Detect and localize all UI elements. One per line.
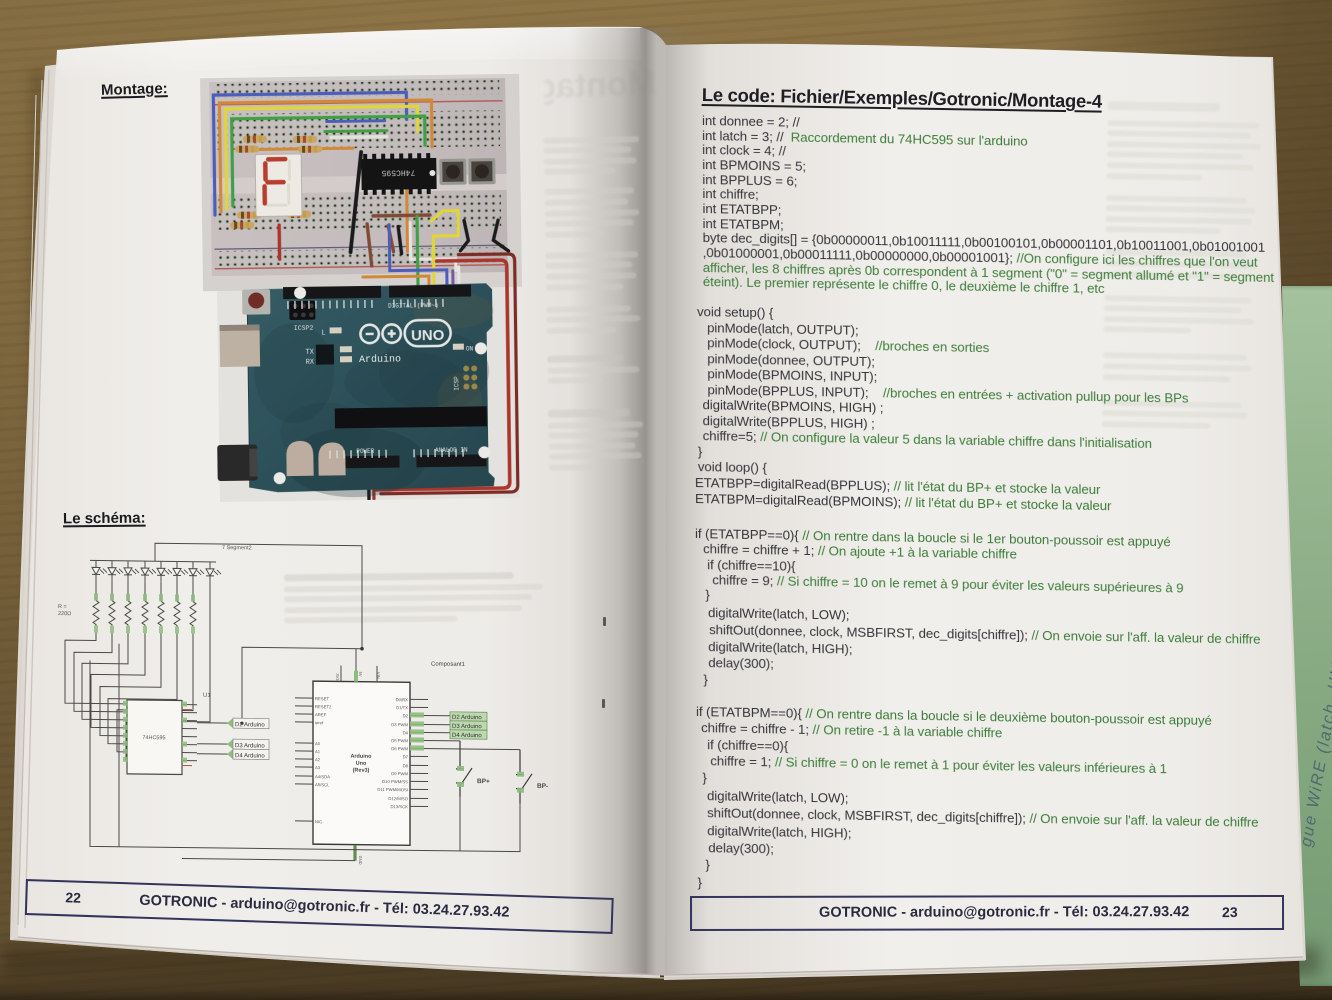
- svg-text:A5/SCL: A5/SCL: [315, 782, 330, 787]
- svg-text:D4 Arduino: D4 Arduino: [235, 753, 265, 759]
- svg-text:Composant1: Composant1: [431, 662, 466, 668]
- svg-text:A4/SDA: A4/SDA: [315, 774, 330, 779]
- svg-text:D1/TX: D1/TX: [396, 705, 408, 710]
- svg-text:TX: TX: [305, 349, 314, 357]
- svg-text:D0/RX: D0/RX: [396, 697, 409, 702]
- svg-text:Arduino: Arduino: [359, 353, 401, 366]
- svg-text:ICSP: ICSP: [453, 376, 460, 391]
- svg-text:UNO: UNO: [411, 327, 445, 344]
- svg-text:D11 PWM/MOSI: D11 PWM/MOSI: [377, 787, 408, 792]
- svg-text:A0: A0: [315, 741, 321, 746]
- svg-text:L: L: [321, 330, 325, 338]
- svg-text:D7: D7: [403, 754, 409, 759]
- svg-text:7 Segment2: 7 Segment2: [222, 545, 252, 551]
- svg-text:AREF: AREF: [315, 712, 327, 717]
- svg-text:VIN: VIN: [376, 672, 381, 679]
- svg-text:D10 PWM/SS: D10 PWM/SS: [382, 779, 408, 784]
- svg-text:D2 Arduino: D2 Arduino: [452, 715, 482, 721]
- svg-text:74HC595: 74HC595: [381, 167, 415, 176]
- svg-text:D12/MISO: D12/MISO: [388, 796, 408, 801]
- svg-text:D3 Arduino: D3 Arduino: [452, 724, 482, 730]
- svg-text:ioref: ioref: [315, 720, 324, 725]
- svg-text:D4 Arduino: D4 Arduino: [452, 733, 482, 739]
- svg-text:A1: A1: [315, 749, 321, 754]
- svg-text:D9 PWM: D9 PWM: [391, 771, 408, 776]
- svg-text:D5 PWM: D5 PWM: [391, 738, 408, 743]
- svg-text:Arduino: Arduino: [350, 754, 372, 760]
- svg-text:220Ω: 220Ω: [58, 611, 71, 617]
- svg-text:D13/SCK: D13/SCK: [391, 804, 409, 809]
- svg-text:ON: ON: [466, 345, 474, 352]
- svg-text:A2: A2: [315, 757, 321, 762]
- svg-text:Uno: Uno: [356, 761, 367, 767]
- svg-text:D4: D4: [403, 730, 409, 735]
- svg-text:N/C: N/C: [315, 819, 322, 824]
- svg-text:BP+: BP+: [477, 778, 490, 785]
- svg-text:BP-: BP-: [537, 783, 548, 790]
- svg-text:RX: RX: [306, 359, 315, 367]
- svg-text:D8: D8: [403, 763, 409, 768]
- svg-text:GND: GND: [358, 856, 363, 865]
- svg-text:3V3: 3V3: [335, 673, 340, 681]
- svg-text:ICSP2: ICSP2: [294, 325, 314, 332]
- svg-text:5V: 5V: [358, 672, 363, 677]
- svg-text:74HC595: 74HC595: [142, 735, 165, 741]
- svg-text:D2: D2: [403, 713, 409, 718]
- svg-text:RESET: RESET: [315, 696, 329, 701]
- svg-text:DIGITAL (PWM~): DIGITAL (PWM~): [388, 302, 439, 310]
- svg-text:D3 Arduino: D3 Arduino: [235, 743, 265, 749]
- svg-text:A3: A3: [315, 765, 321, 770]
- svg-text:R =: R =: [58, 604, 67, 610]
- svg-text:RESET2: RESET2: [315, 704, 332, 709]
- svg-text:(Rev3): (Rev3): [353, 768, 370, 774]
- svg-text:U1: U1: [203, 693, 211, 699]
- svg-text:D2 Arduino: D2 Arduino: [235, 722, 265, 728]
- svg-text:D3 PWM: D3 PWM: [391, 722, 408, 727]
- svg-text:D6 PWM: D6 PWM: [391, 746, 408, 751]
